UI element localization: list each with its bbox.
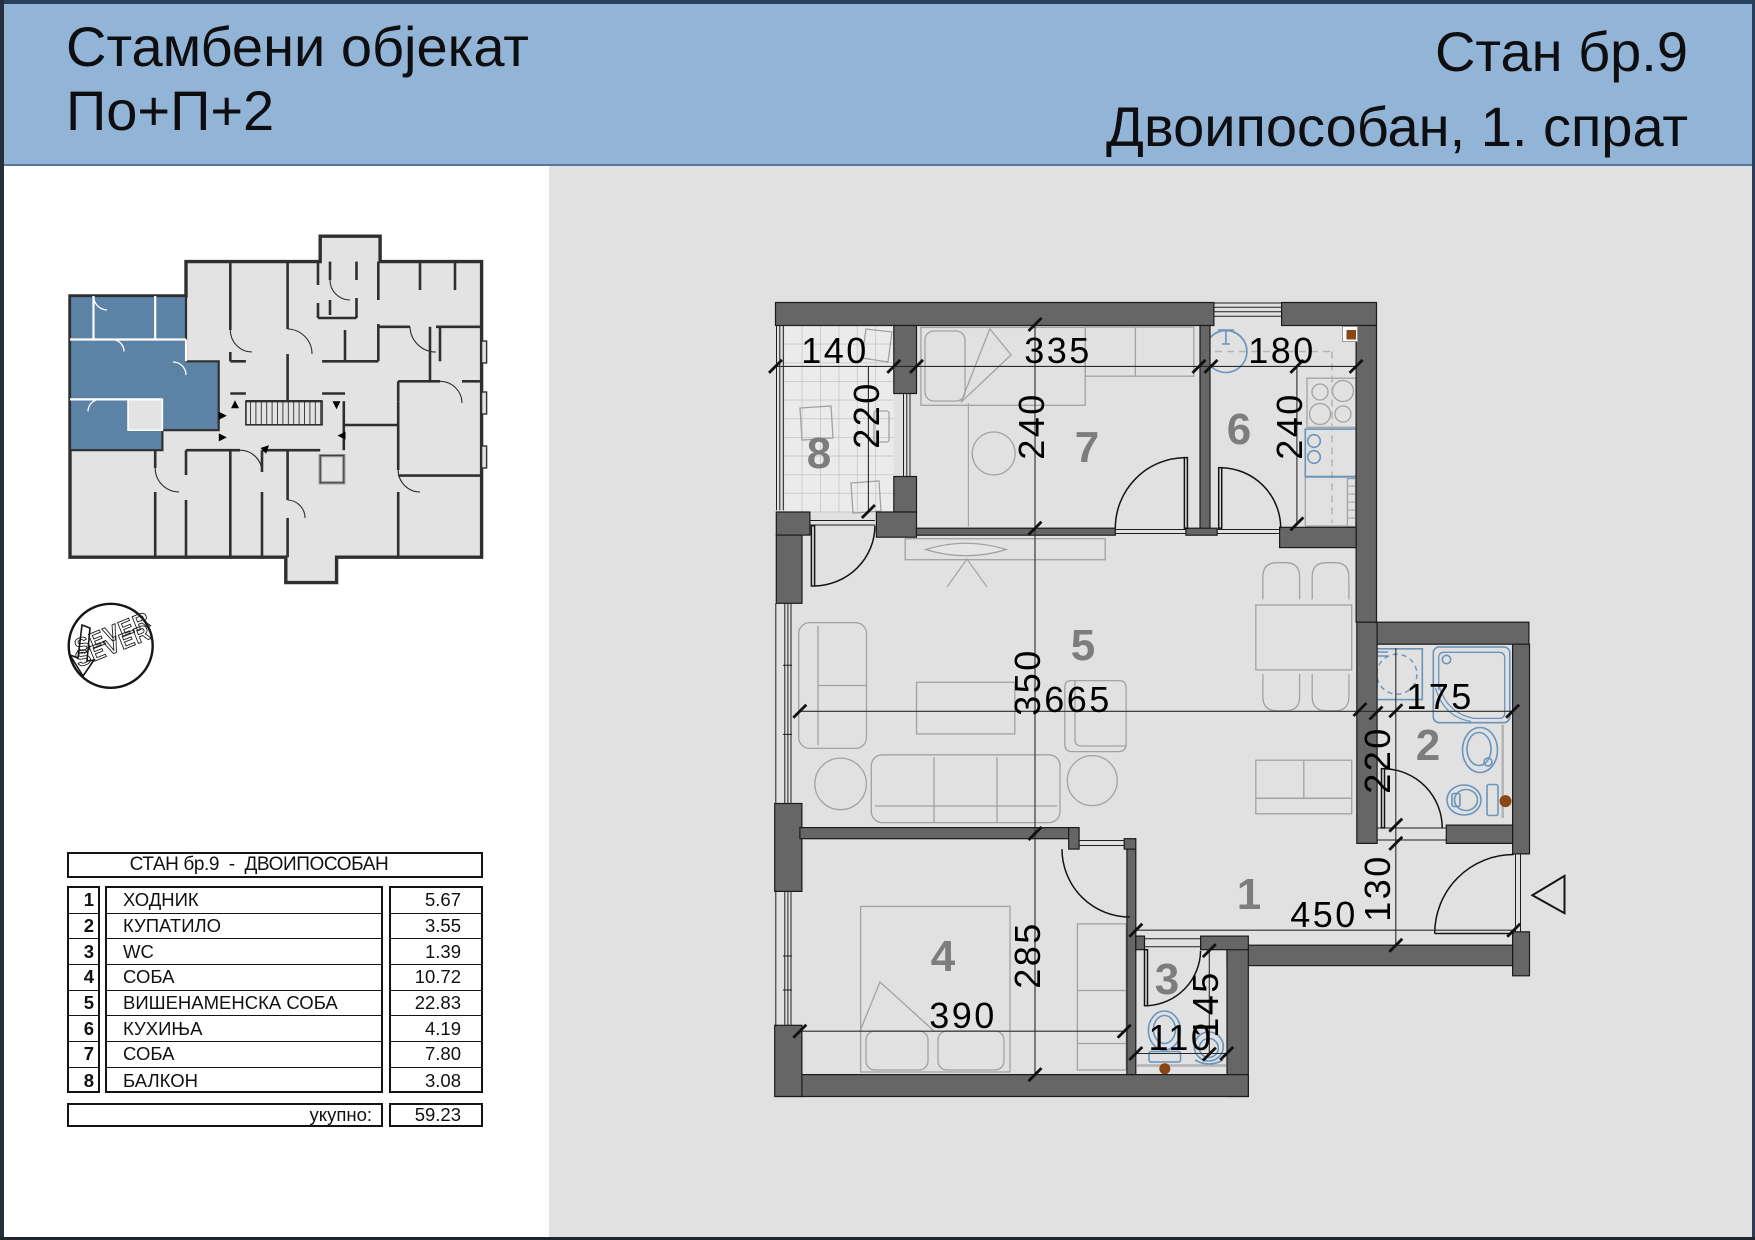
svg-text:4: 4 [931, 932, 956, 981]
svg-text:140: 140 [801, 330, 869, 371]
svg-text:665: 665 [1044, 679, 1112, 720]
svg-text:145: 145 [1185, 970, 1226, 1038]
svg-text:1: 1 [1237, 870, 1261, 919]
svg-text:390: 390 [929, 995, 997, 1036]
svg-text:220: 220 [846, 381, 887, 449]
svg-text:7: 7 [1075, 423, 1099, 472]
svg-text:450: 450 [1290, 894, 1358, 935]
svg-text:175: 175 [1406, 676, 1474, 717]
svg-text:180: 180 [1248, 330, 1316, 371]
svg-text:5: 5 [1071, 621, 1095, 670]
svg-text:2: 2 [1416, 721, 1440, 770]
svg-text:240: 240 [1011, 392, 1052, 460]
svg-text:6: 6 [1227, 405, 1251, 454]
svg-text:130: 130 [1357, 854, 1398, 922]
svg-text:285: 285 [1007, 921, 1048, 989]
svg-text:220: 220 [1357, 726, 1398, 794]
svg-text:240: 240 [1269, 392, 1310, 460]
svg-text:3: 3 [1155, 955, 1179, 1004]
svg-text:8: 8 [807, 429, 831, 478]
svg-text:350: 350 [1007, 648, 1048, 716]
svg-text:335: 335 [1024, 330, 1092, 371]
